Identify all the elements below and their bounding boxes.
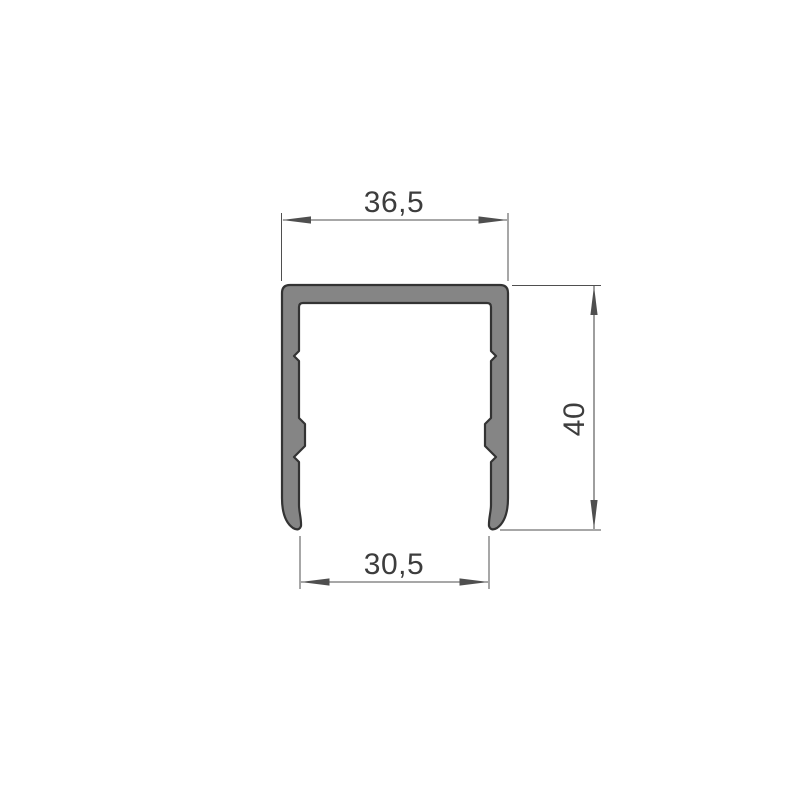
technical-drawing: 36,5 40 30,5 [0,0,800,800]
dimension-height: 40 [500,286,601,531]
dimension-label-outer-width: 36,5 [364,186,424,219]
arrowhead-left-icon [301,578,330,585]
arrowhead-right-icon [460,578,489,585]
arrowhead-right-icon [479,216,508,223]
arrowhead-up-icon [590,286,597,315]
profile-drawing-canvas: 36,5 40 30,5 [0,0,800,800]
dimension-opening-width: 30,5 [300,536,489,589]
dimension-label-height: 40 [558,402,591,436]
c-channel-profile-shape [282,285,508,529]
arrowhead-left-icon [282,216,311,223]
dimension-outer-width: 36,5 [282,186,509,281]
arrowhead-down-icon [590,500,597,529]
dimension-label-opening-width: 30,5 [364,548,424,581]
